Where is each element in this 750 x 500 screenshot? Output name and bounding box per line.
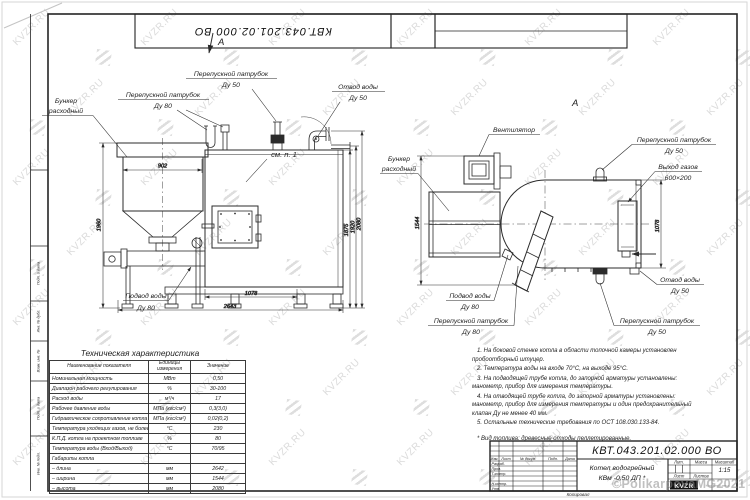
- callout-gas-outlet: 600×200: [665, 175, 692, 182]
- boiler-shell: [501, 180, 641, 272]
- row-units: мм: [149, 474, 191, 484]
- tech-table: Наименование показателя Единицы измерени…: [49, 360, 246, 494]
- callout-gas-outlet: Выход газов: [658, 163, 698, 171]
- row-value: 2080: [191, 484, 246, 494]
- table-row: Температура уходящих газов, не более°С23…: [50, 424, 246, 434]
- table-row: Расход водым³/ч17: [50, 394, 246, 404]
- row-units: %: [149, 384, 191, 394]
- callout-pp50: Перепускной патрубок: [194, 70, 269, 78]
- fuel-footnote: * Вид топлива: древесные отходы пеллетир…: [472, 435, 707, 444]
- note-item: 3. На подводящей трубе котла, до запорно…: [472, 375, 707, 392]
- dim-902: 902: [158, 164, 168, 170]
- water-inlet-fitting: [502, 249, 513, 260]
- row-units: м³/ч: [149, 394, 191, 404]
- table-row: Номинальная мощностьМВт0,50: [50, 374, 246, 384]
- row-units: МПа (кгс/см²): [149, 404, 191, 414]
- boiler-door: [202, 206, 261, 248]
- bypass-pipe-du50: [271, 122, 284, 150]
- tech-table-title: Техническая характеристика: [49, 348, 231, 358]
- left-view-dimensions: 902 1960 1875 1920 2080 1078 2643: [97, 131, 366, 313]
- dim-1078-right: 1078: [655, 219, 661, 232]
- bypass-nozzle-top: [594, 168, 607, 181]
- row-units: МВт: [149, 374, 191, 384]
- row-value: 70/95: [191, 444, 246, 454]
- fan: [464, 153, 511, 189]
- callout-podvod: Ду 80: [136, 305, 155, 312]
- doc-number-reversed: КВТ.043.201.02.000 ВО: [135, 14, 391, 48]
- callout-pp50-top: Ду 50: [664, 148, 683, 155]
- row-value: 1544: [191, 474, 246, 484]
- callout-otvod-right: Отвод воды: [660, 276, 700, 284]
- row-units: %: [149, 434, 191, 444]
- left-view: [104, 117, 350, 308]
- role-razrab: Разраб.: [492, 462, 505, 466]
- table-row: К.П.Д. котла на проектном топливе%80: [50, 434, 246, 444]
- dim-1078: 1078: [245, 291, 258, 297]
- hopper-top-view: [429, 192, 500, 257]
- scale-value: 1:15: [719, 468, 731, 474]
- dim-1875: 1875: [344, 223, 350, 236]
- note-item: 2. Температура воды на входе 70°С, на вы…: [472, 365, 707, 374]
- col-data: Дата: [564, 457, 575, 461]
- top-fitting: [221, 125, 229, 132]
- callout-fan: Вентилятор: [493, 127, 535, 134]
- row-units: МПа (кгс/см²): [149, 414, 191, 424]
- row-value: 0,02(0,2): [191, 414, 246, 424]
- table-row: – высотамм2080: [50, 484, 246, 494]
- margin-label: Инв. № дубл.: [37, 310, 41, 333]
- row-name: – высота: [50, 484, 149, 494]
- callout-bunker: расходный: [48, 107, 83, 115]
- callout-bunker-right: расходный: [381, 165, 416, 173]
- table-row: – ширинамм1544: [50, 474, 246, 484]
- row-name: Гидравлическое сопротивление котла: [50, 414, 149, 424]
- col-podp: Подп.: [548, 457, 558, 461]
- th-name: Наименование показателя: [50, 361, 149, 374]
- row-name: – длина: [50, 464, 149, 474]
- dim-2080: 2080: [357, 217, 363, 231]
- row-value: [191, 454, 246, 464]
- notes-block: 1. На боковой стенке котла в области топ…: [472, 347, 707, 444]
- row-value: 17: [191, 394, 246, 404]
- row-name: Температура уходящих газов, не более: [50, 424, 149, 434]
- callout-podvod: Подвод воды: [125, 292, 166, 300]
- bypass-pipe-du80: [206, 126, 215, 148]
- col-list: Лист: [500, 457, 511, 461]
- table-row: Гидравлическое сопротивление котлаМПа (к…: [50, 414, 246, 424]
- row-units: [149, 454, 191, 464]
- col-dokum: № докум.: [520, 457, 536, 461]
- callout-pp50-bottom: Перепускной патрубок: [620, 317, 695, 325]
- dim-1544: 1544: [415, 217, 421, 229]
- row-name: Диапазон рабочего регулирования: [50, 384, 149, 394]
- callout-pp80-right: Перепускной патрубок: [434, 317, 509, 325]
- row-name: Габариты котла: [50, 454, 149, 464]
- gas-outlet: [618, 201, 656, 257]
- callout-otvod: Отвод воды: [338, 83, 378, 91]
- margin-label: Инв. № подл.: [37, 452, 41, 475]
- dim-2643: 2643: [223, 304, 237, 310]
- tech-characteristics: Техническая характеристика Наименование …: [49, 348, 231, 494]
- margin-label: Взам. инв. №: [37, 350, 41, 373]
- table-row: Диапазон рабочего регулирования%30-100: [50, 384, 246, 394]
- drawing-sheet: KVZR.RUKVZR.RUKVZR.RUKVZR.RUKVZR.RUKVZR.…: [0, 0, 750, 500]
- callout-pp80-right: Ду 80: [461, 329, 480, 336]
- row-name: Температура воды (Вход/Выход): [50, 444, 149, 454]
- kopiroval-label: Копировал: [567, 492, 590, 497]
- callout-pp50: Ду 50: [221, 82, 240, 89]
- masshtab-header: Масштаб: [715, 460, 735, 465]
- th-units: Единицы измерения: [149, 361, 191, 374]
- row-value: 30-100: [191, 384, 246, 394]
- table-row: Габариты котла: [50, 454, 246, 464]
- bypass-nozzle-bottom: [593, 268, 607, 284]
- right-view: А: [424, 98, 656, 292]
- row-name: Рабочее давление воды: [50, 404, 149, 414]
- copyright-watermark: ©PolikarpovaMG2021: [612, 477, 750, 491]
- doc-number: КВТ.043.201.02.000 ВО: [592, 445, 722, 457]
- margin-label: Подп. и дата: [37, 262, 41, 285]
- callout-bunker-right: Бункер: [388, 156, 410, 163]
- col-izm: Изм.: [491, 457, 499, 461]
- callout-otvod-right: Ду 50: [670, 288, 689, 295]
- note-item: 4. На отводящей трубе котла, до запорной…: [472, 393, 707, 419]
- row-name: Номинальная мощность: [50, 374, 149, 384]
- row-units: °С: [149, 444, 191, 454]
- margin-labels: Подп. и дата Инв. № дубл. Взам. инв. № П…: [37, 262, 41, 475]
- dim-1960: 1960: [97, 218, 103, 231]
- callout-bunker: Бункер: [55, 98, 77, 105]
- role-nkontr: Н.контр.: [492, 482, 508, 486]
- row-value: 230: [191, 424, 246, 434]
- callout-see-note-1: см. п. 1: [271, 150, 297, 159]
- row-name: К.П.Д. котла на проектном топливе: [50, 434, 149, 444]
- row-units: °С: [149, 424, 191, 434]
- row-units: мм: [149, 464, 191, 474]
- margin-label: Подп. и дата: [37, 397, 41, 420]
- role-prov: Пров.: [492, 467, 502, 471]
- view-a-label: А: [571, 98, 578, 109]
- table-row: Температура воды (Вход/Выход)°С70/95: [50, 444, 246, 454]
- lit-header: Лит.: [673, 460, 684, 465]
- table-row: – длинамм2642: [50, 464, 246, 474]
- callout-pp80: Перепускной патрубок: [126, 91, 201, 99]
- callout-pp80: Ду 80: [153, 103, 172, 110]
- note-item: 5. Остальные технические требования по О…: [472, 419, 707, 428]
- water-outlet-stub: [630, 268, 639, 274]
- massa-header: Масса: [695, 460, 708, 465]
- fuel-auger: [512, 211, 553, 292]
- product-title: Котел водогрейный: [590, 464, 655, 472]
- callout-pp50-top: Перепускной патрубок: [637, 136, 712, 144]
- row-value: 0,3(3,0): [191, 404, 246, 414]
- row-name: – ширина: [50, 474, 149, 484]
- note-item: 1. На боковой стенке котла в области топ…: [472, 347, 707, 364]
- callout-podvod-right: Ду 80: [460, 304, 479, 311]
- row-units: мм: [149, 484, 191, 494]
- callout-otvod: Ду 50: [348, 95, 367, 102]
- callout-podvod-right: Подвод воды: [449, 292, 490, 300]
- role-utv: Утв.: [492, 487, 500, 491]
- left-view-callouts: Бункер расходный Перепускной патрубок Ду…: [42, 33, 385, 312]
- role-tkontr: Т.контр.: [492, 472, 507, 476]
- table-row: Рабочее давление водыМПа (кгс/см²)0,3(3,…: [50, 404, 246, 414]
- row-value: 2642: [191, 464, 246, 474]
- row-value: 0,50: [191, 374, 246, 384]
- water-outlet-elbow: [301, 117, 331, 150]
- row-name: Расход воды: [50, 394, 149, 404]
- callout-pp50-bottom: Ду 50: [647, 329, 666, 336]
- th-value: Значение: [191, 361, 246, 374]
- row-value: 80: [191, 434, 246, 444]
